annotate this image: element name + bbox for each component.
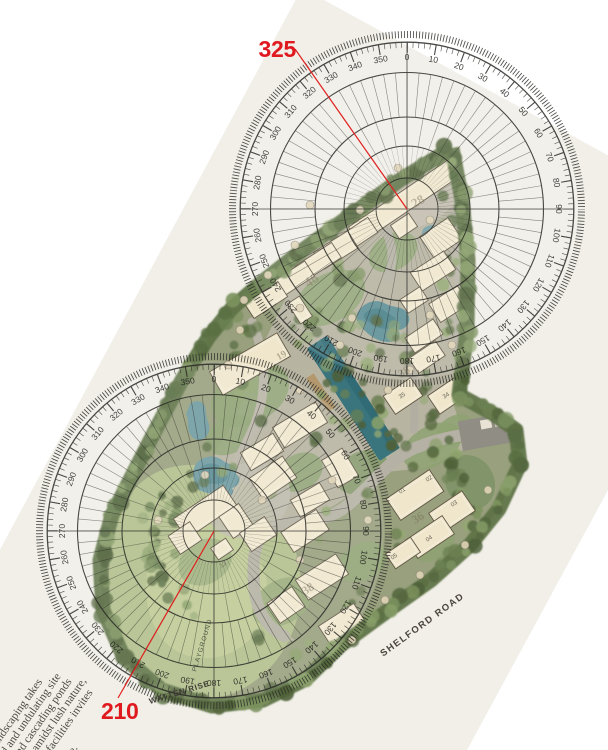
svg-text:10: 10 [235, 376, 246, 388]
svg-text:80: 80 [551, 177, 563, 188]
svg-text:210: 210 [101, 698, 138, 724]
svg-text:325: 325 [259, 36, 297, 62]
svg-text:80: 80 [358, 499, 370, 510]
svg-text:10: 10 [428, 54, 439, 66]
